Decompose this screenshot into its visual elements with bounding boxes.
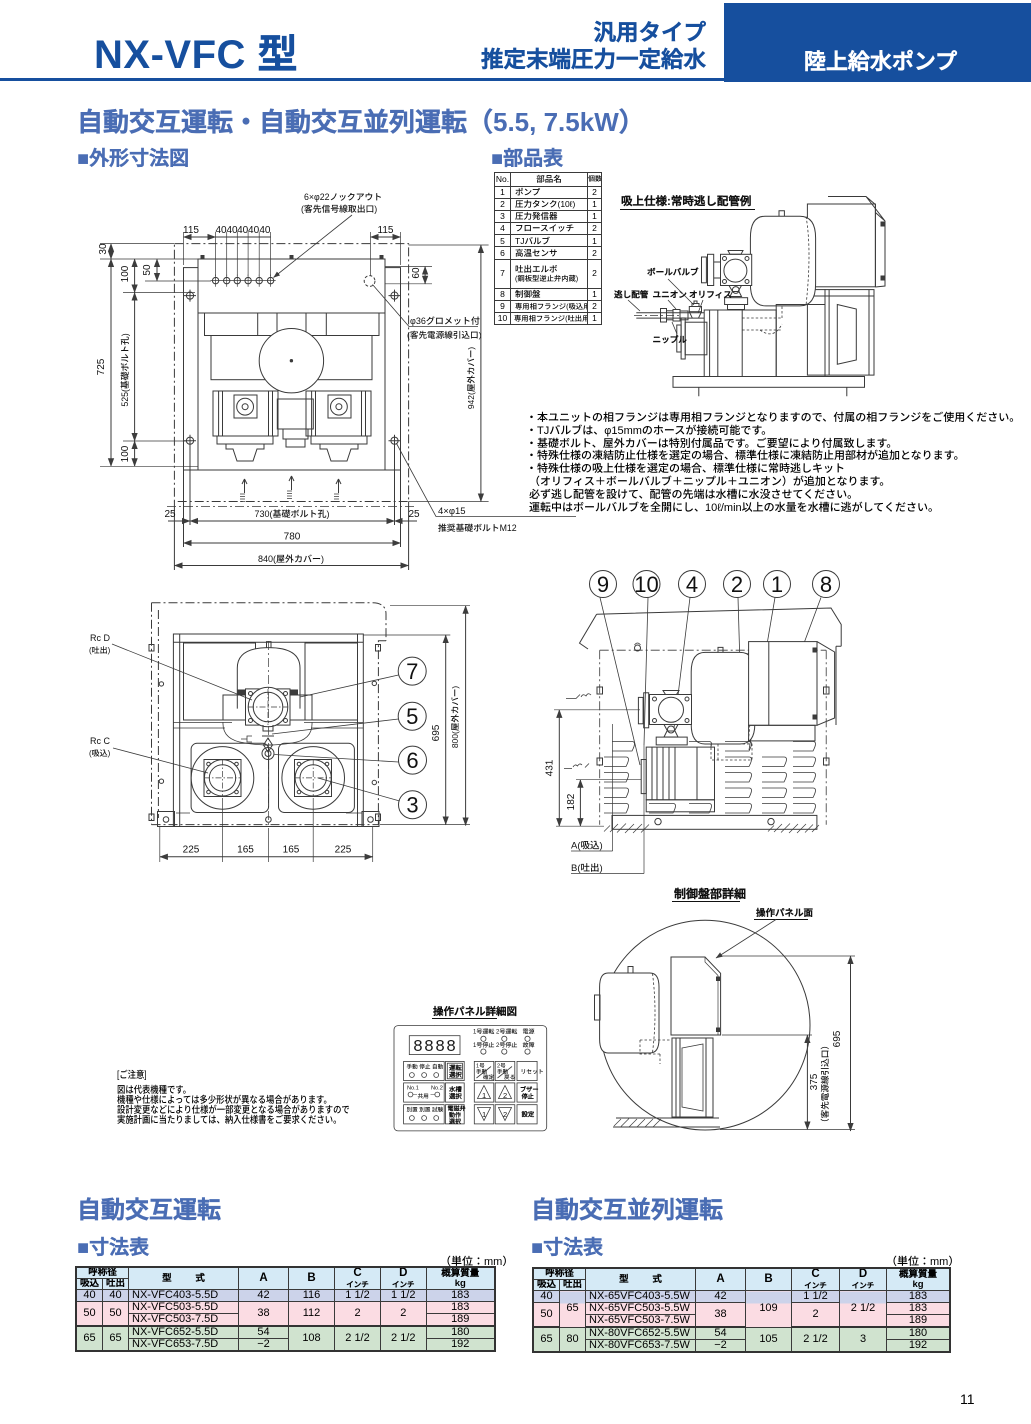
svg-text:選択: 選択 — [449, 1093, 462, 1101]
svg-text:(吸込): (吸込) — [89, 749, 111, 758]
svg-text:運転: 運転 — [449, 1064, 462, 1072]
svg-text:2: 2 — [503, 1091, 507, 1100]
svg-text:No.1: No.1 — [407, 1086, 419, 1092]
svg-text:動作: 動作 — [449, 1111, 461, 1119]
svg-text:操作パネル詳細図: 操作パネル詳細図 — [433, 1005, 517, 1018]
svg-text:100: 100 — [120, 265, 131, 282]
svg-text:182: 182 — [566, 793, 577, 810]
svg-text:40: 40 — [259, 225, 271, 236]
svg-text:1: 1 — [482, 1110, 486, 1119]
svg-text:8888: 8888 — [413, 1037, 456, 1056]
svg-text:設定: 設定 — [522, 1111, 535, 1119]
svg-text:375: 375 — [809, 1073, 820, 1090]
svg-text:停止: 停止 — [521, 1093, 535, 1101]
svg-text:別置 別置 試験: 別置 別置 試験 — [407, 1107, 444, 1114]
svg-text:（客先電源線引込口）: （客先電源線引込口） — [820, 1041, 830, 1127]
svg-text:60: 60 — [411, 267, 422, 279]
svg-text:2: 2 — [731, 572, 743, 597]
svg-text:1: 1 — [482, 1091, 486, 1100]
svg-text:25: 25 — [408, 509, 420, 520]
svg-text:(吐出): (吐出) — [89, 646, 111, 655]
svg-text:50: 50 — [142, 264, 153, 276]
svg-text:1号: 1号 — [476, 1063, 485, 1070]
svg-text:戻る: 戻る — [504, 1074, 515, 1081]
svg-text:(客先電源線引込口): (客先電源線引込口) — [407, 330, 482, 340]
svg-text:840(屋外カバー): 840(屋外カバー) — [258, 554, 324, 564]
svg-text:780: 780 — [284, 532, 301, 543]
svg-text:B(吐出): B(吐出) — [571, 863, 603, 874]
svg-text:1: 1 — [771, 572, 783, 597]
svg-text:吸上仕様:常時逃し配管例: 吸上仕様:常時逃し配管例 — [621, 194, 751, 208]
svg-text:730(基礎ボルト孔): 730(基礎ボルト孔) — [254, 509, 329, 519]
svg-text:9: 9 — [597, 572, 609, 597]
svg-text:225: 225 — [183, 845, 200, 856]
svg-text:10: 10 — [634, 572, 658, 597]
svg-text:推奨基礎ボルトM12: 推奨基礎ボルトM12 — [438, 523, 517, 533]
svg-text:水槽: 水槽 — [448, 1085, 462, 1093]
svg-text:695: 695 — [431, 724, 442, 741]
svg-text:6×φ22ノックアウト: 6×φ22ノックアウト — [304, 192, 382, 202]
svg-text:165: 165 — [237, 845, 254, 856]
svg-text:30: 30 — [98, 243, 109, 255]
svg-text:ニップル: ニップル — [653, 335, 688, 345]
svg-text:8: 8 — [820, 572, 832, 597]
svg-text:695: 695 — [832, 1030, 843, 1047]
svg-text:25: 25 — [164, 509, 176, 520]
svg-text:100: 100 — [120, 445, 131, 462]
svg-text:942(屋外カバー): 942(屋外カバー) — [466, 347, 476, 410]
svg-text:オリフィス: オリフィス — [689, 290, 732, 300]
svg-text:431: 431 — [545, 759, 556, 776]
svg-text:選択: 選択 — [449, 1117, 462, 1125]
svg-text:800(屋外カバー): 800(屋外カバー) — [450, 686, 460, 749]
svg-text:A(吸込): A(吸込) — [571, 841, 603, 852]
svg-text:ユニオン: ユニオン — [653, 290, 688, 300]
svg-text:2: 2 — [503, 1110, 507, 1119]
svg-text:1号停止 2号停止: 1号停止 2号停止 — [473, 1041, 517, 1049]
svg-text:φ36グロメット付: φ36グロメット付 — [410, 316, 480, 326]
svg-text:525(基礎ボルト孔): 525(基礎ボルト孔) — [120, 333, 130, 406]
svg-text:故障: 故障 — [523, 1041, 535, 1049]
svg-text:Rc D: Rc D — [90, 633, 111, 643]
svg-text:40: 40 — [237, 225, 249, 236]
svg-text:ブザー: ブザー — [520, 1085, 539, 1093]
svg-text:2号: 2号 — [497, 1063, 506, 1070]
svg-text:(客先信号線取出口): (客先信号線取出口) — [301, 204, 377, 214]
svg-text:確定: 確定 — [483, 1074, 495, 1081]
svg-text:リセット: リセット — [521, 1068, 544, 1075]
svg-text:6: 6 — [406, 748, 418, 773]
svg-text:電磁弁: 電磁弁 — [448, 1105, 466, 1113]
svg-text:725: 725 — [96, 358, 107, 375]
svg-text:1号運転 2号運転: 1号運転 2号運転 — [473, 1028, 517, 1036]
svg-text:225: 225 — [335, 845, 352, 856]
svg-text:3: 3 — [406, 793, 418, 818]
svg-text:40: 40 — [215, 225, 227, 236]
svg-text:7: 7 — [406, 659, 418, 684]
svg-text:4: 4 — [686, 572, 698, 597]
svg-text:115: 115 — [378, 225, 394, 236]
svg-text:選択: 選択 — [449, 1071, 462, 1079]
svg-text:制御盤部詳細: 制御盤部詳細 — [674, 887, 746, 901]
svg-text:No.2: No.2 — [431, 1086, 443, 1092]
svg-text:Rc C: Rc C — [90, 736, 111, 746]
svg-text:4×φ15: 4×φ15 — [438, 506, 466, 517]
svg-text:40: 40 — [248, 225, 260, 236]
svg-text:5: 5 — [406, 704, 418, 729]
svg-text:165: 165 — [283, 845, 300, 856]
svg-text:115: 115 — [183, 225, 199, 236]
svg-text:電源: 電源 — [523, 1028, 535, 1036]
svg-text:手動 停止 自動: 手動 停止 自動 — [407, 1064, 444, 1071]
svg-text:操作パネル面: 操作パネル面 — [756, 907, 814, 919]
svg-text:ボールバルブ: ボールバルブ — [647, 267, 699, 277]
svg-text:逃し配管: 逃し配管 — [614, 290, 649, 300]
svg-text:共用: 共用 — [418, 1093, 429, 1100]
